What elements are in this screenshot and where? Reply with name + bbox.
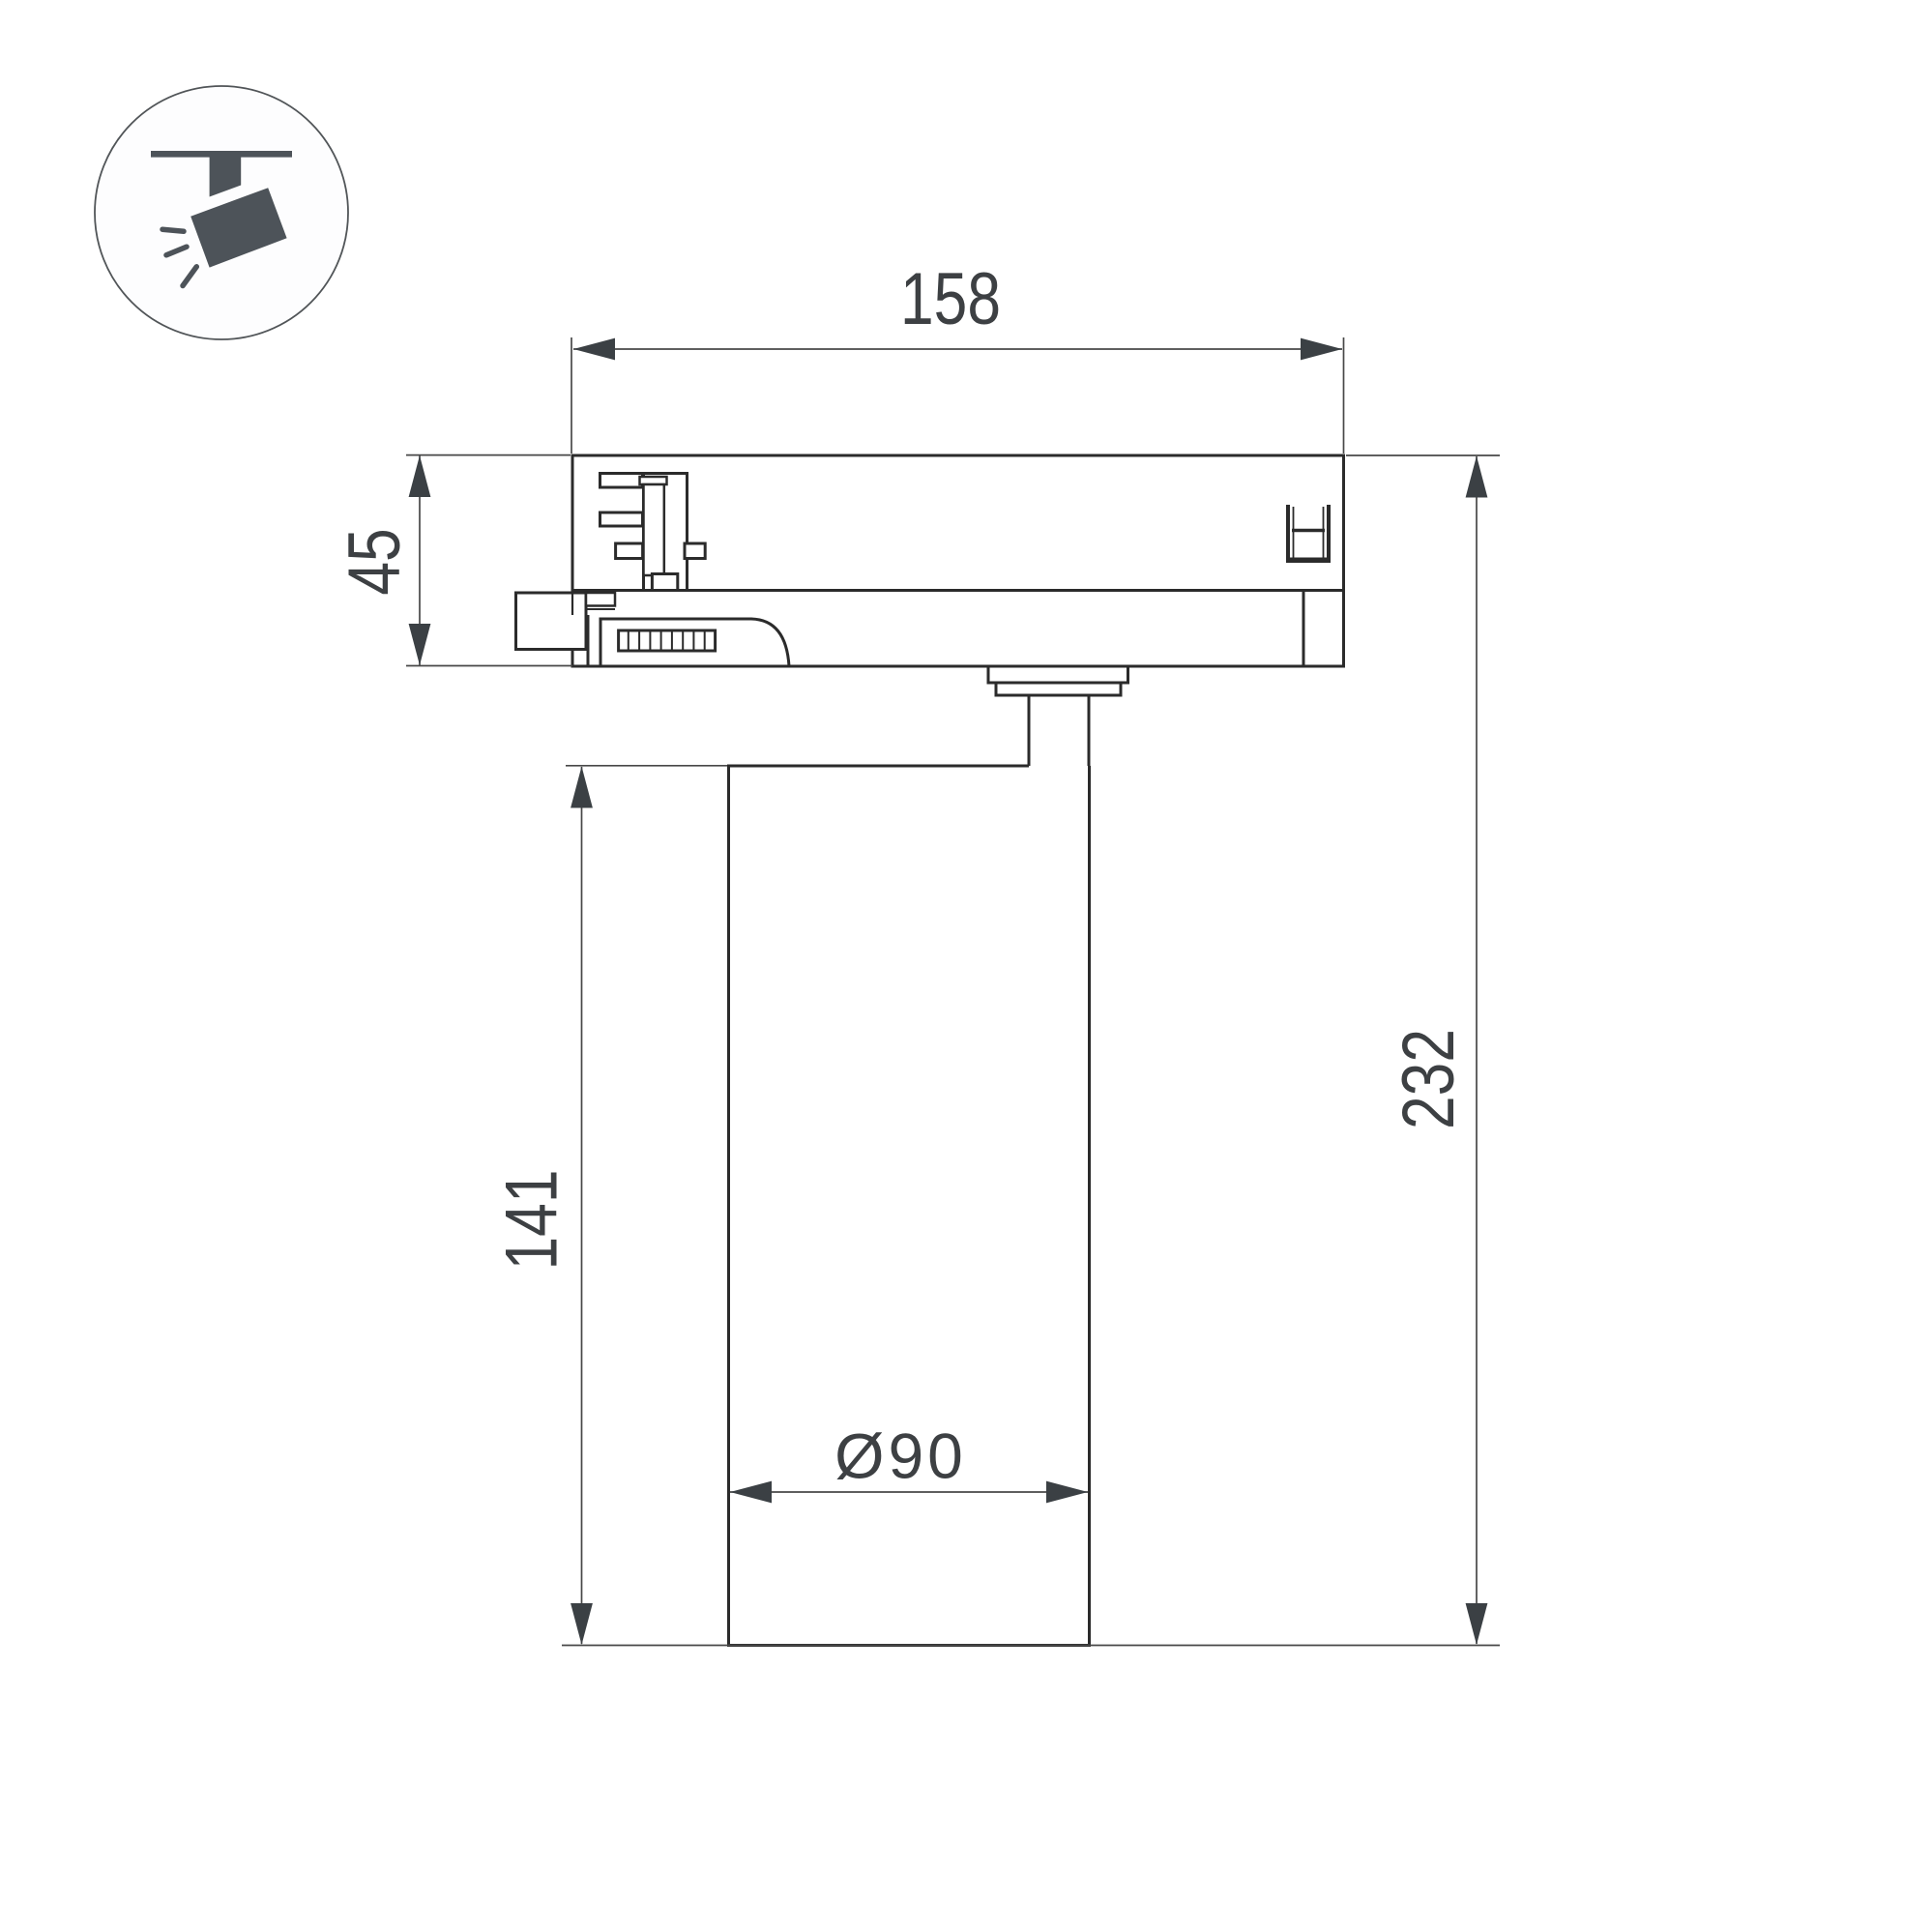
svg-text:232: 232 xyxy=(1387,1029,1469,1129)
svg-text:141: 141 xyxy=(490,1170,572,1271)
svg-text:158: 158 xyxy=(900,257,1001,339)
svg-text:45: 45 xyxy=(333,528,415,595)
svg-text:Ø90: Ø90 xyxy=(834,1420,967,1492)
